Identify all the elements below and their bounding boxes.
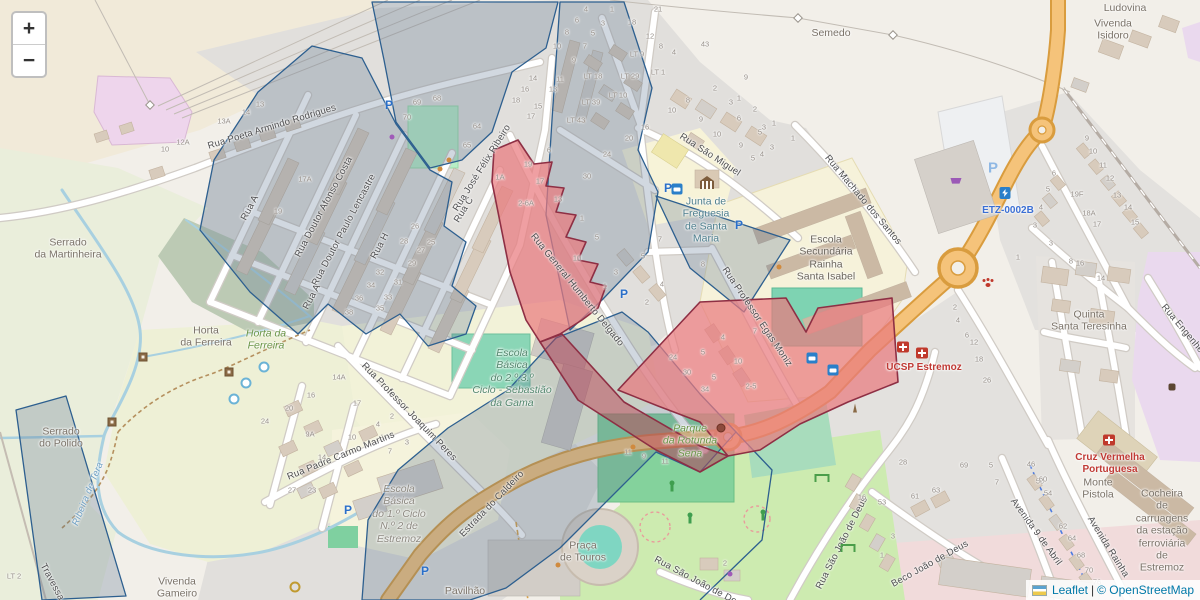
- zoom-in-button[interactable]: +: [13, 13, 45, 45]
- osm-link[interactable]: © OpenStreetMap: [1097, 583, 1194, 597]
- zoom-control: + −: [11, 11, 47, 78]
- attribution-separator: |: [1091, 583, 1094, 597]
- leaflet-flag-icon: [1032, 585, 1047, 596]
- zoom-out-button[interactable]: −: [13, 45, 45, 76]
- attribution-bar: Leaflet | © OpenStreetMap: [1026, 580, 1200, 600]
- leaflet-map[interactable]: Rua Poeta Armindo RodriguesRua Doutor Af…: [0, 0, 1200, 600]
- leaflet-link[interactable]: Leaflet: [1052, 583, 1088, 597]
- basemap: [0, 0, 1200, 600]
